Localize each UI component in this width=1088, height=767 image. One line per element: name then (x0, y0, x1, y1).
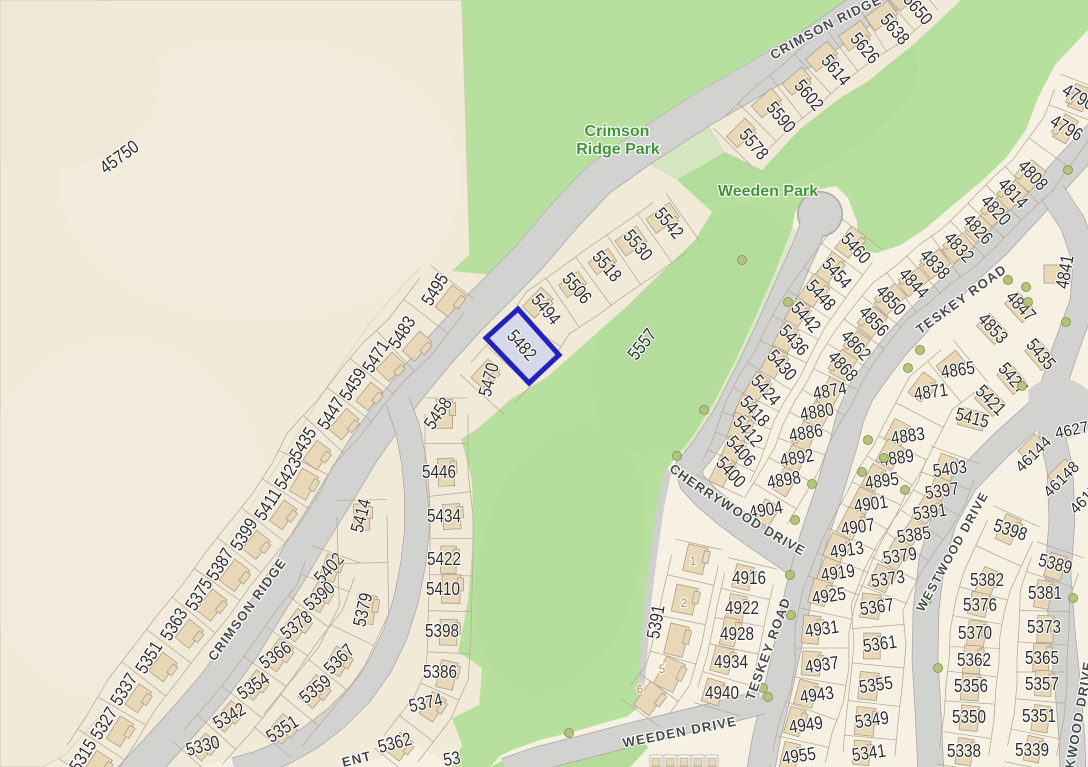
svg-text:Weeden Park: Weeden Park (718, 183, 818, 200)
svg-text:1: 1 (690, 554, 697, 568)
svg-text:5386: 5386 (423, 661, 457, 682)
svg-text:5357: 5357 (1025, 673, 1059, 694)
svg-text:4916: 4916 (732, 567, 766, 588)
svg-text:4928: 4928 (720, 623, 754, 644)
svg-text:4922: 4922 (725, 597, 759, 618)
svg-text:5376: 5376 (963, 594, 997, 615)
svg-text:5381: 5381 (1028, 582, 1062, 603)
svg-text:5351: 5351 (1022, 705, 1056, 726)
svg-text:5365: 5365 (1025, 647, 1059, 668)
svg-text:5434: 5434 (427, 505, 461, 526)
svg-text:5398: 5398 (425, 620, 459, 641)
svg-text:Ridge Park: Ridge Park (576, 141, 660, 158)
svg-text:5339: 5339 (1015, 739, 1049, 760)
svg-text:5362: 5362 (957, 649, 991, 670)
svg-text:4940: 4940 (705, 682, 739, 703)
svg-text:5356: 5356 (954, 675, 988, 696)
svg-text:2: 2 (681, 596, 688, 610)
svg-text:5446: 5446 (422, 461, 456, 482)
svg-text:4934: 4934 (714, 651, 748, 672)
svg-text:5410: 5410 (426, 578, 460, 599)
svg-text:6: 6 (637, 682, 644, 696)
svg-text:5350: 5350 (952, 706, 986, 727)
svg-text:5422: 5422 (427, 548, 461, 569)
svg-text:5382: 5382 (970, 569, 1004, 590)
svg-text:Crimson: Crimson (585, 123, 650, 140)
svg-text:4955: 4955 (780, 743, 817, 767)
svg-text:5370: 5370 (958, 622, 992, 643)
svg-text:5338: 5338 (947, 740, 981, 761)
svg-text:5: 5 (659, 662, 666, 676)
svg-text:5373: 5373 (1027, 616, 1061, 637)
